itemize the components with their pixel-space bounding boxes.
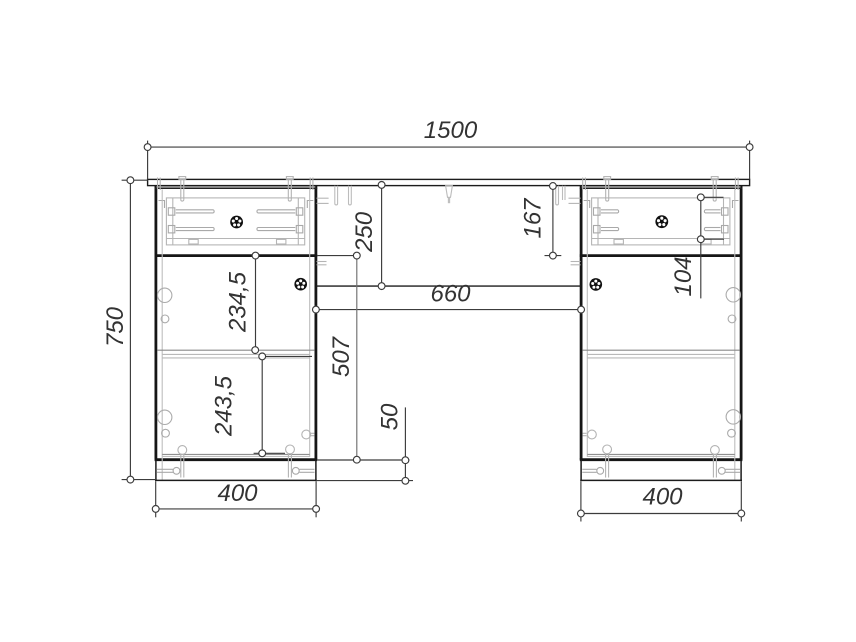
svg-text:400: 400	[217, 480, 258, 507]
svg-text:234,5: 234,5	[224, 271, 251, 333]
svg-text:400: 400	[642, 483, 683, 510]
svg-text:50: 50	[376, 403, 403, 430]
svg-text:660: 660	[430, 281, 471, 308]
svg-text:507: 507	[328, 335, 355, 377]
svg-text:250: 250	[351, 211, 378, 253]
svg-text:167: 167	[519, 197, 546, 239]
svg-text:243,5: 243,5	[210, 375, 237, 437]
svg-text:750: 750	[102, 306, 129, 347]
svg-text:104: 104	[670, 256, 697, 296]
svg-text:1500: 1500	[424, 117, 478, 144]
